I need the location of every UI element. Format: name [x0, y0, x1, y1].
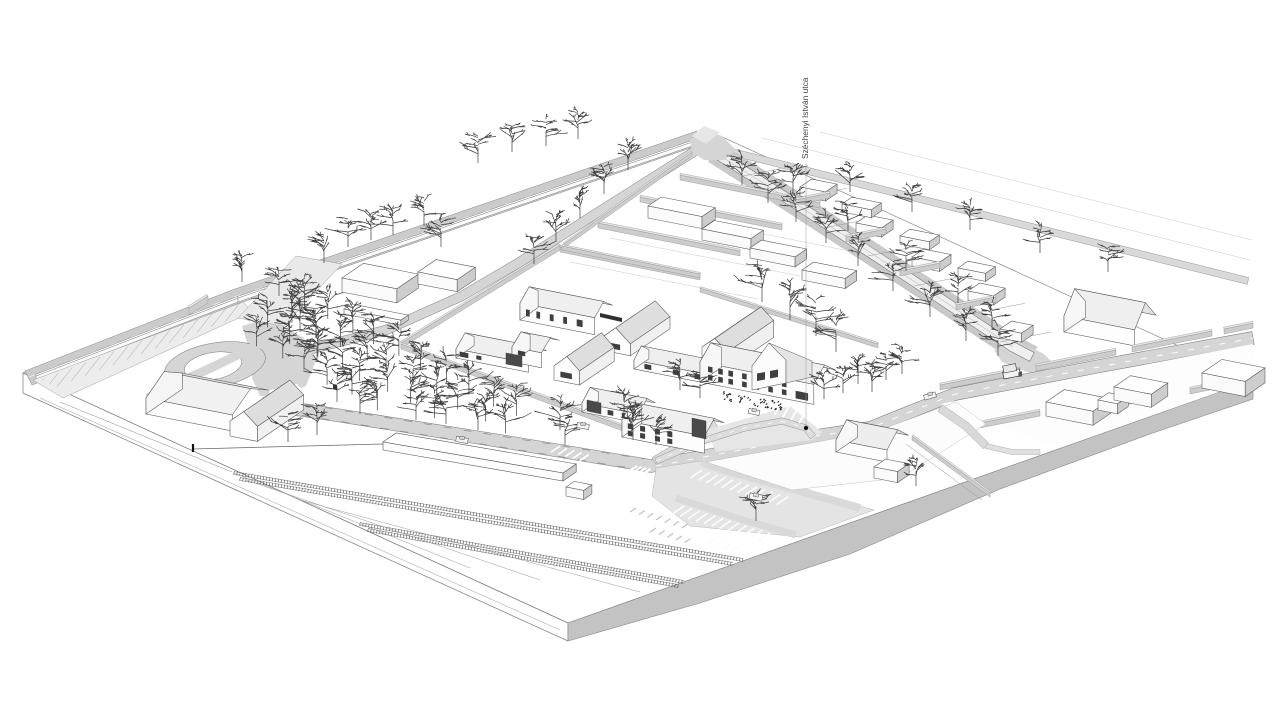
svg-text:Széchenyi István utca: Széchenyi István utca [800, 77, 810, 159]
